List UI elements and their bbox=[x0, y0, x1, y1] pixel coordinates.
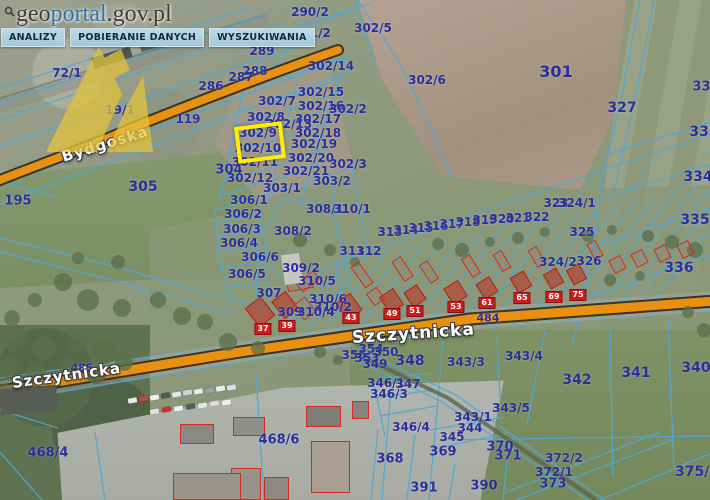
menu-wyszukiwania[interactable]: WYSZUKIWANIA bbox=[209, 28, 315, 47]
menu-bar: ANALIZYPOBIERANIE DANYCHWYSZUKIWANIA bbox=[1, 28, 315, 47]
logo-geo: geo bbox=[16, 1, 51, 27]
geoportal-logo[interactable]: geoportal.gov.pl bbox=[16, 0, 172, 28]
menu-analizy[interactable]: ANALIZY bbox=[1, 28, 65, 47]
logo-suffix: .gov.pl bbox=[107, 1, 172, 27]
cadastral-overlay bbox=[0, 0, 710, 500]
map-canvas[interactable]: 290/2291/2302/5289288287286302/14302/630… bbox=[0, 0, 710, 500]
highlighted-parcel-302-10[interactable] bbox=[234, 121, 286, 164]
menu-pobieranie-danych[interactable]: POBIERANIE DANYCH bbox=[70, 28, 204, 47]
logo-icon bbox=[4, 6, 15, 17]
logo-portal: portal bbox=[51, 1, 107, 27]
